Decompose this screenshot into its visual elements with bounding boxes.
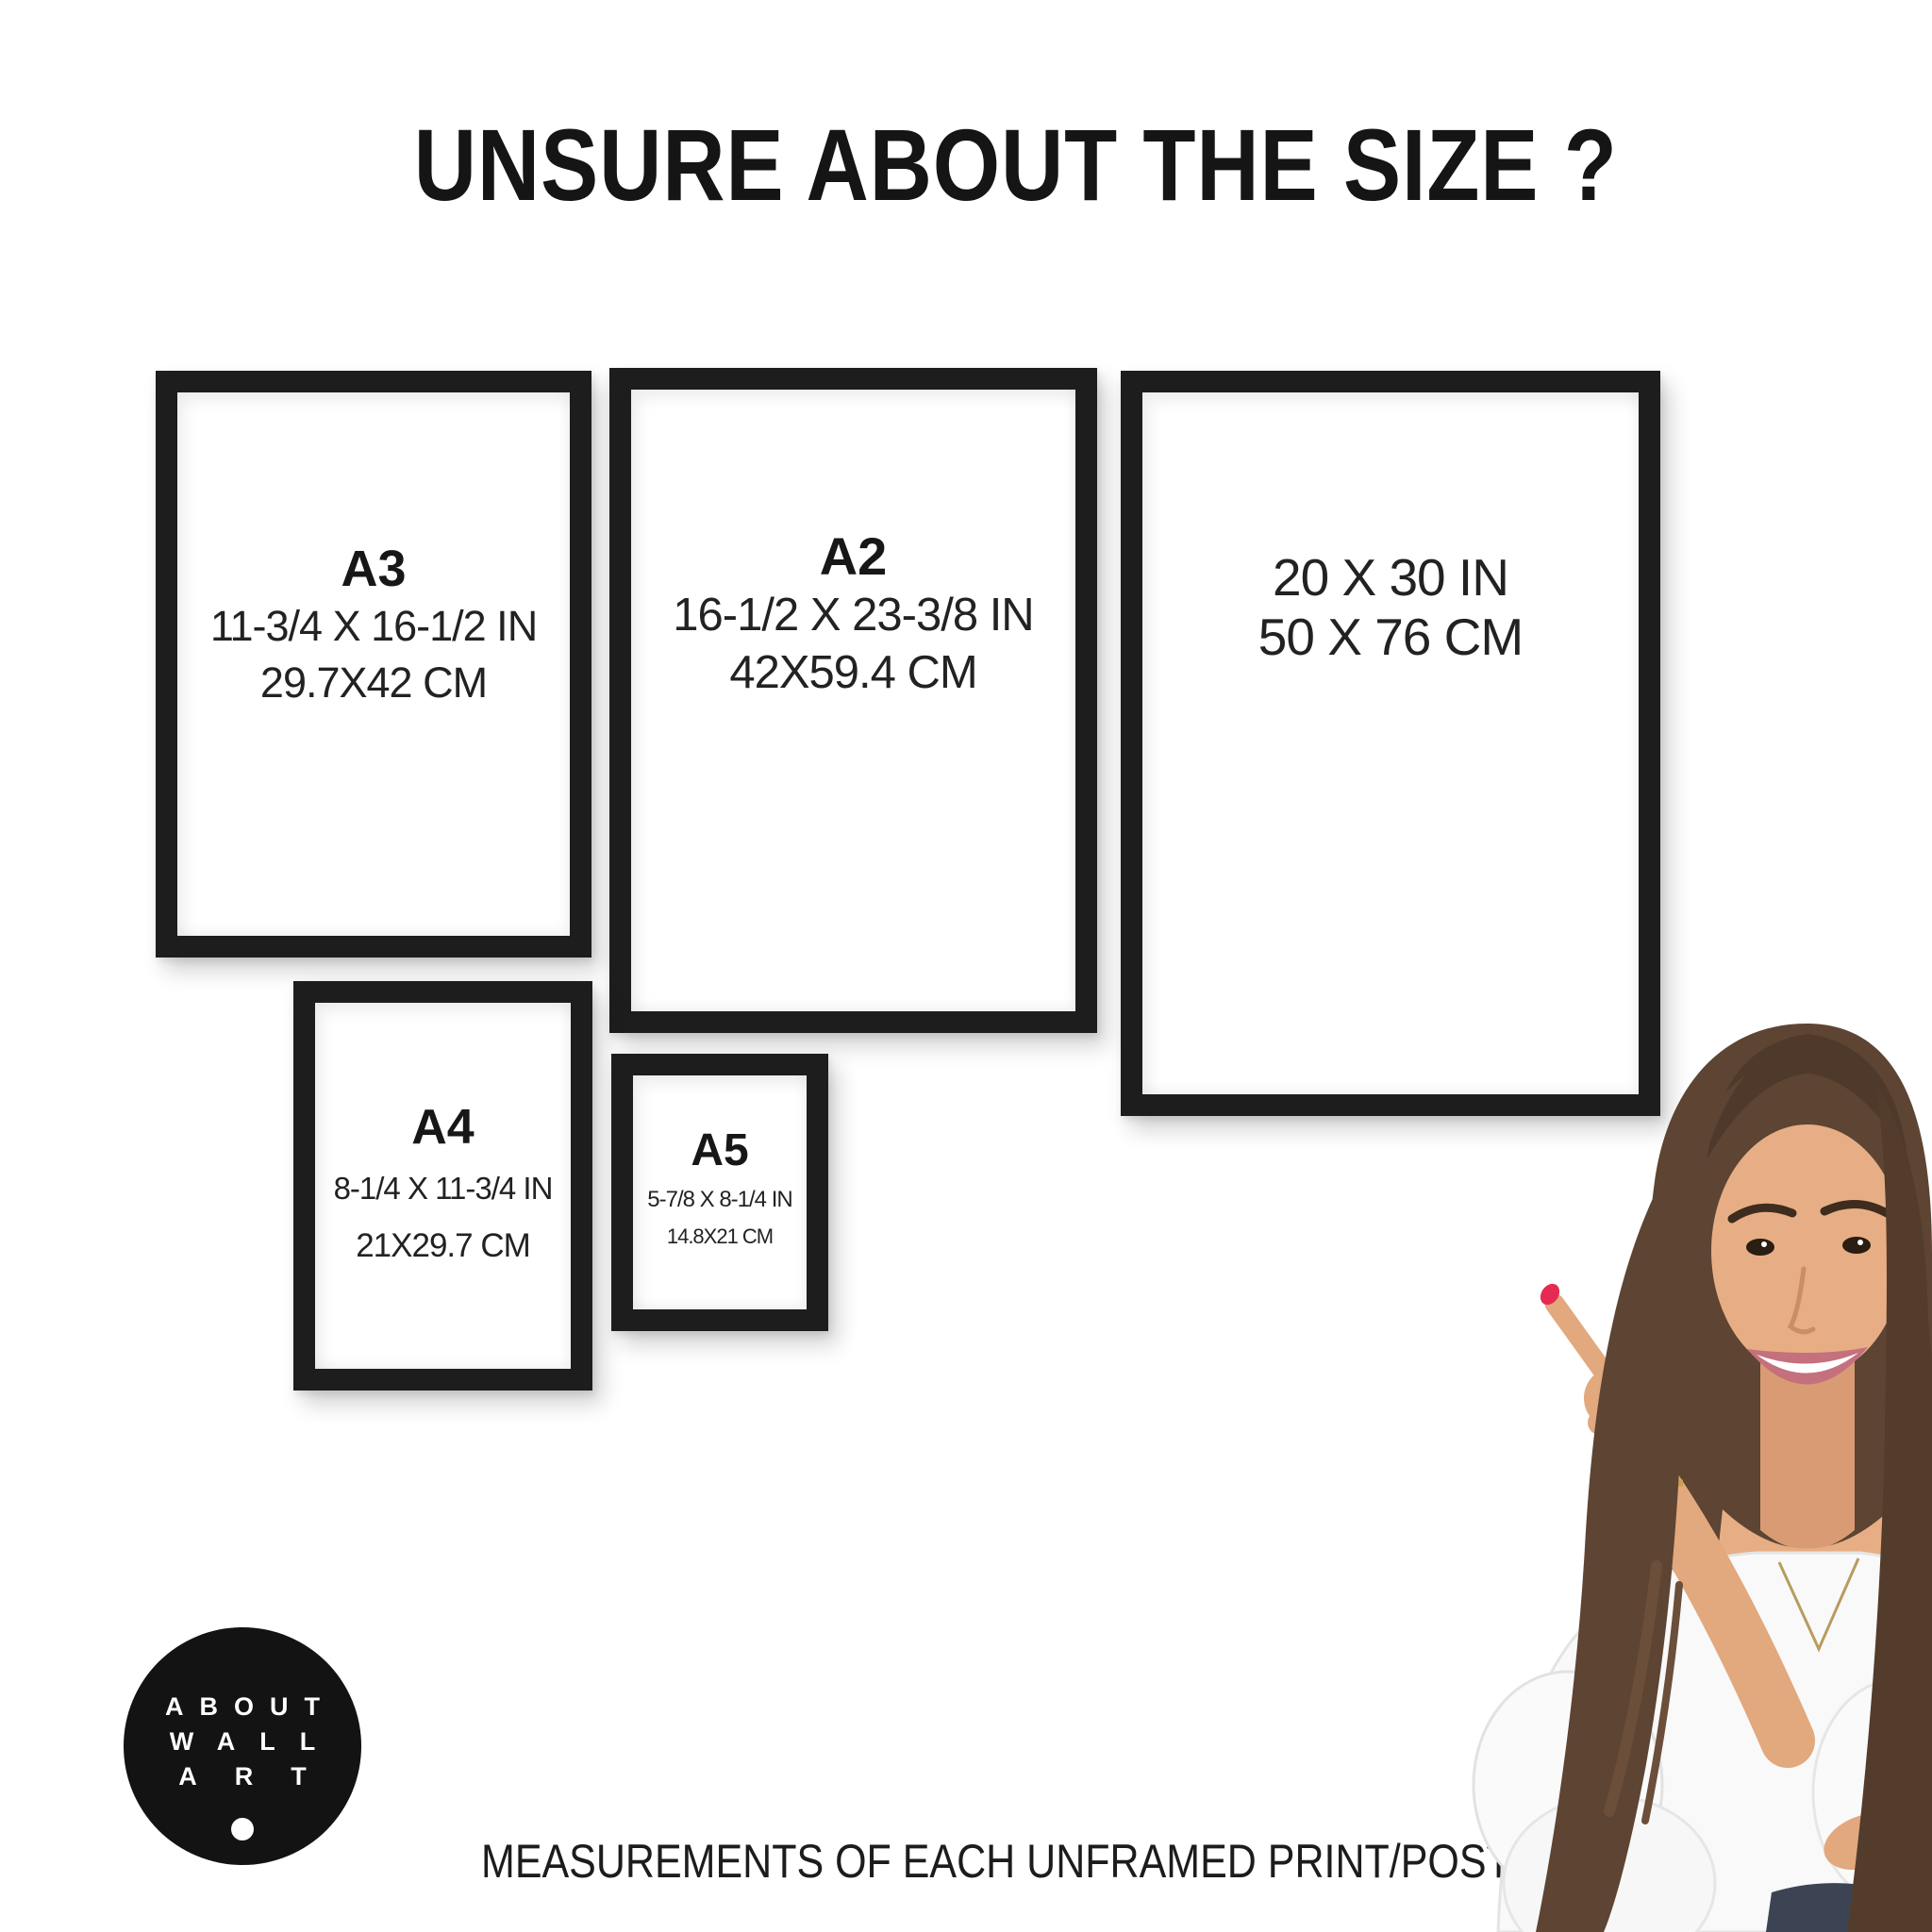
frame-a4-size-cm: 21X29.7 CM [315, 1227, 571, 1265]
frame-a5-size-inches: 5-7/8 X 8-1/4 IN [633, 1187, 807, 1213]
frame-20x30: 20 X 30 IN 50 X 76 CM [1121, 371, 1660, 1116]
frame-20x30-size-inches: 20 X 30 IN [1142, 548, 1639, 608]
frame-a2-size-name: A2 [631, 526, 1075, 587]
person-neck [1709, 1340, 1907, 1632]
frame-a5-size-name: A5 [633, 1124, 807, 1177]
person-smile [1747, 1347, 1868, 1385]
brand-logo: ABOUT WALL ART [124, 1627, 361, 1865]
size-guide-poster: { "title": "UNSURE ABOUT THE SIZE ?", "f… [0, 0, 1932, 1932]
page-title: UNSURE ABOUT THE SIZE ? [414, 106, 1577, 224]
frame-a5-size-cm: 14.8X21 CM [633, 1224, 807, 1249]
person-eye-right [1842, 1237, 1871, 1254]
person-hair-fringe [1707, 1034, 1907, 1158]
person-necklace [1779, 1558, 1858, 1649]
frame-a2-size-inches: 16-1/2 X 23-3/8 IN [631, 587, 1075, 644]
frame-a3: A3 11-3/4 X 16-1/2 IN 29.7X42 CM [156, 371, 591, 958]
frame-a3-size-inches: 11-3/4 X 16-1/2 IN [177, 598, 570, 655]
person-pointing-arm [1537, 1280, 1788, 1740]
frame-a4-size-name: A4 [315, 1099, 571, 1156]
frame-a3-size-cm: 29.7X42 CM [177, 655, 570, 711]
logo-line-about: ABOUT [124, 1690, 377, 1724]
frame-20x30-size-cm: 50 X 76 CM [1142, 608, 1639, 667]
logo-line-wall: WALL [124, 1724, 386, 1759]
frame-a2: A2 16-1/2 X 23-3/8 IN 42X59.4 CM [609, 368, 1097, 1033]
person-face [1711, 1124, 1904, 1385]
logo-dot-icon [231, 1818, 254, 1840]
person-jeans [1766, 1883, 1885, 1932]
person-index-finger [1555, 1304, 1607, 1377]
frame-a4: A4 8-1/4 X 11-3/4 IN 21X29.7 CM [293, 981, 592, 1391]
frame-a4-size-inches: 8-1/4 X 11-3/4 IN [315, 1171, 571, 1207]
frame-a4-text: A4 8-1/4 X 11-3/4 IN 21X29.7 CM [315, 1099, 571, 1265]
frame-20x30-mat [1142, 392, 1639, 1094]
frame-a2-size-cm: 42X59.4 CM [631, 644, 1075, 702]
person-hair-strands [1536, 1075, 1932, 1932]
person-hand [1584, 1367, 1646, 1429]
person-hair [1598, 1024, 1932, 1932]
person-hand-resting [1817, 1803, 1916, 1880]
frame-a3-text: A3 11-3/4 X 16-1/2 IN 29.7X42 CM [177, 540, 570, 711]
frame-a3-size-name: A3 [177, 540, 570, 598]
person-red-nail [1537, 1280, 1564, 1308]
frame-20x30-text: 20 X 30 IN 50 X 76 CM [1142, 548, 1639, 667]
frame-a2-text: A2 16-1/2 X 23-3/8 IN 42X59.4 CM [631, 526, 1075, 702]
person-eye-left [1746, 1239, 1774, 1256]
footer-caption: MEASUREMENTS OF EACH UNFRAMED PRINT/POST… [481, 1834, 1292, 1889]
frame-a5: A5 5-7/8 X 8-1/4 IN 14.8X21 CM [611, 1054, 828, 1331]
person-nose [1790, 1269, 1813, 1332]
person-sleeve-right [1813, 1679, 1932, 1906]
person-eyebrow-right [1824, 1204, 1887, 1213]
person-bracelet [1643, 1483, 1683, 1498]
person-eyebrow-left [1732, 1207, 1792, 1219]
logo-line-art: ART [124, 1759, 399, 1794]
frame-a5-text: A5 5-7/8 X 8-1/4 IN 14.8X21 CM [633, 1124, 807, 1249]
